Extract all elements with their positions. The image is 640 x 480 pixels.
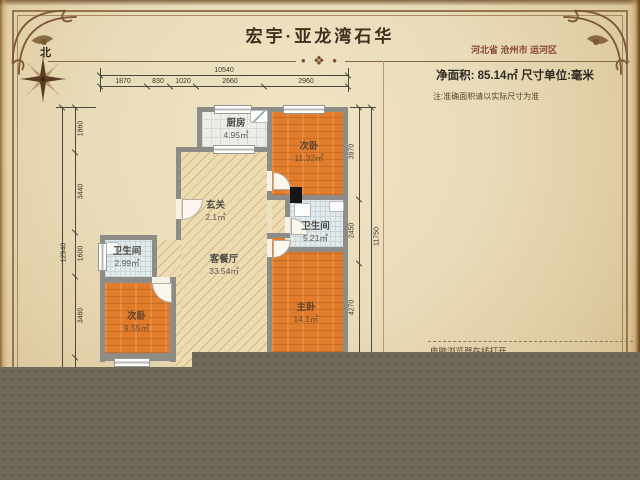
room-name: 卫生间 xyxy=(102,246,152,258)
room-area: 11.32㎡ xyxy=(275,153,343,164)
entry-door-gap xyxy=(176,199,181,219)
header-divider-right xyxy=(345,61,630,62)
dim-right-seg: 2450 xyxy=(349,216,356,246)
dim-line-top-total xyxy=(100,75,348,76)
dim-line-right-total xyxy=(371,107,372,352)
kitchen-window xyxy=(214,105,252,114)
room-label-master: 主卧 14.1㎡ xyxy=(272,302,340,325)
wall-bedtop-bottom xyxy=(267,195,348,200)
dim-top-seg: 2660 xyxy=(210,78,250,85)
room-name: 玄关 xyxy=(188,200,243,212)
bath-corridor-floor xyxy=(272,200,285,233)
bedroom-bottom-window xyxy=(114,358,150,367)
room-label-living: 客餐厅 33.54㎡ xyxy=(190,254,258,277)
edge-top xyxy=(0,0,640,6)
dim-top-seg: 1020 xyxy=(163,78,203,85)
info-divider xyxy=(383,61,384,352)
dim-right-seg: 4270 xyxy=(349,293,356,323)
wall-bathright-bottom xyxy=(285,247,343,252)
room-label-kitchen: 厨房 4.95㎡ xyxy=(201,118,271,141)
compass-rose xyxy=(19,55,67,103)
dim-line-left-segments xyxy=(75,107,76,367)
bedroom-top-door-gap xyxy=(267,171,272,191)
room-label-hall: 玄关 2.1㎡ xyxy=(188,200,243,223)
room-name: 主卧 xyxy=(272,302,340,314)
dim-top-seg: 2960 xyxy=(286,78,326,85)
divider-ornament: • ❖ • xyxy=(294,53,346,69)
dim-line-top-segments xyxy=(100,86,348,87)
net-area-text: 净面积: 85.14㎡ 尺寸单位:毫米 xyxy=(400,67,630,83)
room-area: 4.95㎡ xyxy=(201,130,271,141)
wall-bathleft-right xyxy=(152,235,157,283)
bottom-overlay-full xyxy=(0,367,640,480)
sink-icon xyxy=(329,201,344,212)
dim-right-seg: 3970 xyxy=(349,137,356,167)
bedroom-top-window xyxy=(283,105,325,114)
room-label-bathroom-left: 卫生间 2.99㎡ xyxy=(102,246,152,269)
dim-left-seg: 3440 xyxy=(78,177,85,207)
wall-hall-left xyxy=(176,147,181,240)
room-name: 厨房 xyxy=(201,118,271,130)
room-area: 33.54㎡ xyxy=(190,266,258,277)
floorplan-page: 宏宇·亚龙湾石华 北 • ❖ • 河北省 沧州市 运河区 净面积: 85.14㎡… xyxy=(0,0,640,480)
note-text: 注:准确面积请以实际尺寸为准 xyxy=(433,91,539,102)
master-door-gap xyxy=(267,239,272,257)
dim-left-seg: 3460 xyxy=(78,301,85,331)
room-name: 次卧 xyxy=(275,141,343,153)
dim-line-right-segments xyxy=(359,107,360,352)
living-floor-strip xyxy=(157,240,181,277)
kitchen-sliding-door xyxy=(213,145,255,154)
room-name: 次卧 xyxy=(104,311,169,323)
dim-top-seg: 1870 xyxy=(103,78,143,85)
wall-lowerleft-top xyxy=(100,235,157,240)
room-area: 2.1㎡ xyxy=(188,212,243,223)
dim-top-total: 10540 xyxy=(200,67,248,74)
dim-left-seg: 1600 xyxy=(78,239,85,269)
room-area: 14.1㎡ xyxy=(272,314,340,325)
footer-dashed-line xyxy=(428,341,633,342)
living-floor-strip2 xyxy=(176,277,181,367)
header-divider-left xyxy=(48,61,296,62)
location-text: 河北省 沧州市 运河区 xyxy=(414,43,614,56)
room-label-bedroom-bottom: 次卧 9.55㎡ xyxy=(104,311,169,334)
room-area: 9.55㎡ xyxy=(104,323,169,334)
room-label-bedroom-top: 次卧 11.32㎡ xyxy=(275,141,343,164)
washer-icon xyxy=(294,203,311,217)
room-label-bathroom-right: 卫生间 5.21㎡ xyxy=(288,221,343,244)
flue-shaft xyxy=(290,187,302,203)
dim-left-total: 12940 xyxy=(61,238,68,268)
room-name: 卫生间 xyxy=(288,221,343,233)
dim-right-total: 11750 xyxy=(374,222,381,252)
wall-right xyxy=(343,107,348,352)
room-name: 客餐厅 xyxy=(190,254,258,266)
room-area: 5.21㎡ xyxy=(288,233,343,244)
room-area: 2.99㎡ xyxy=(102,258,152,269)
dim-left-seg: 1860 xyxy=(78,114,85,144)
